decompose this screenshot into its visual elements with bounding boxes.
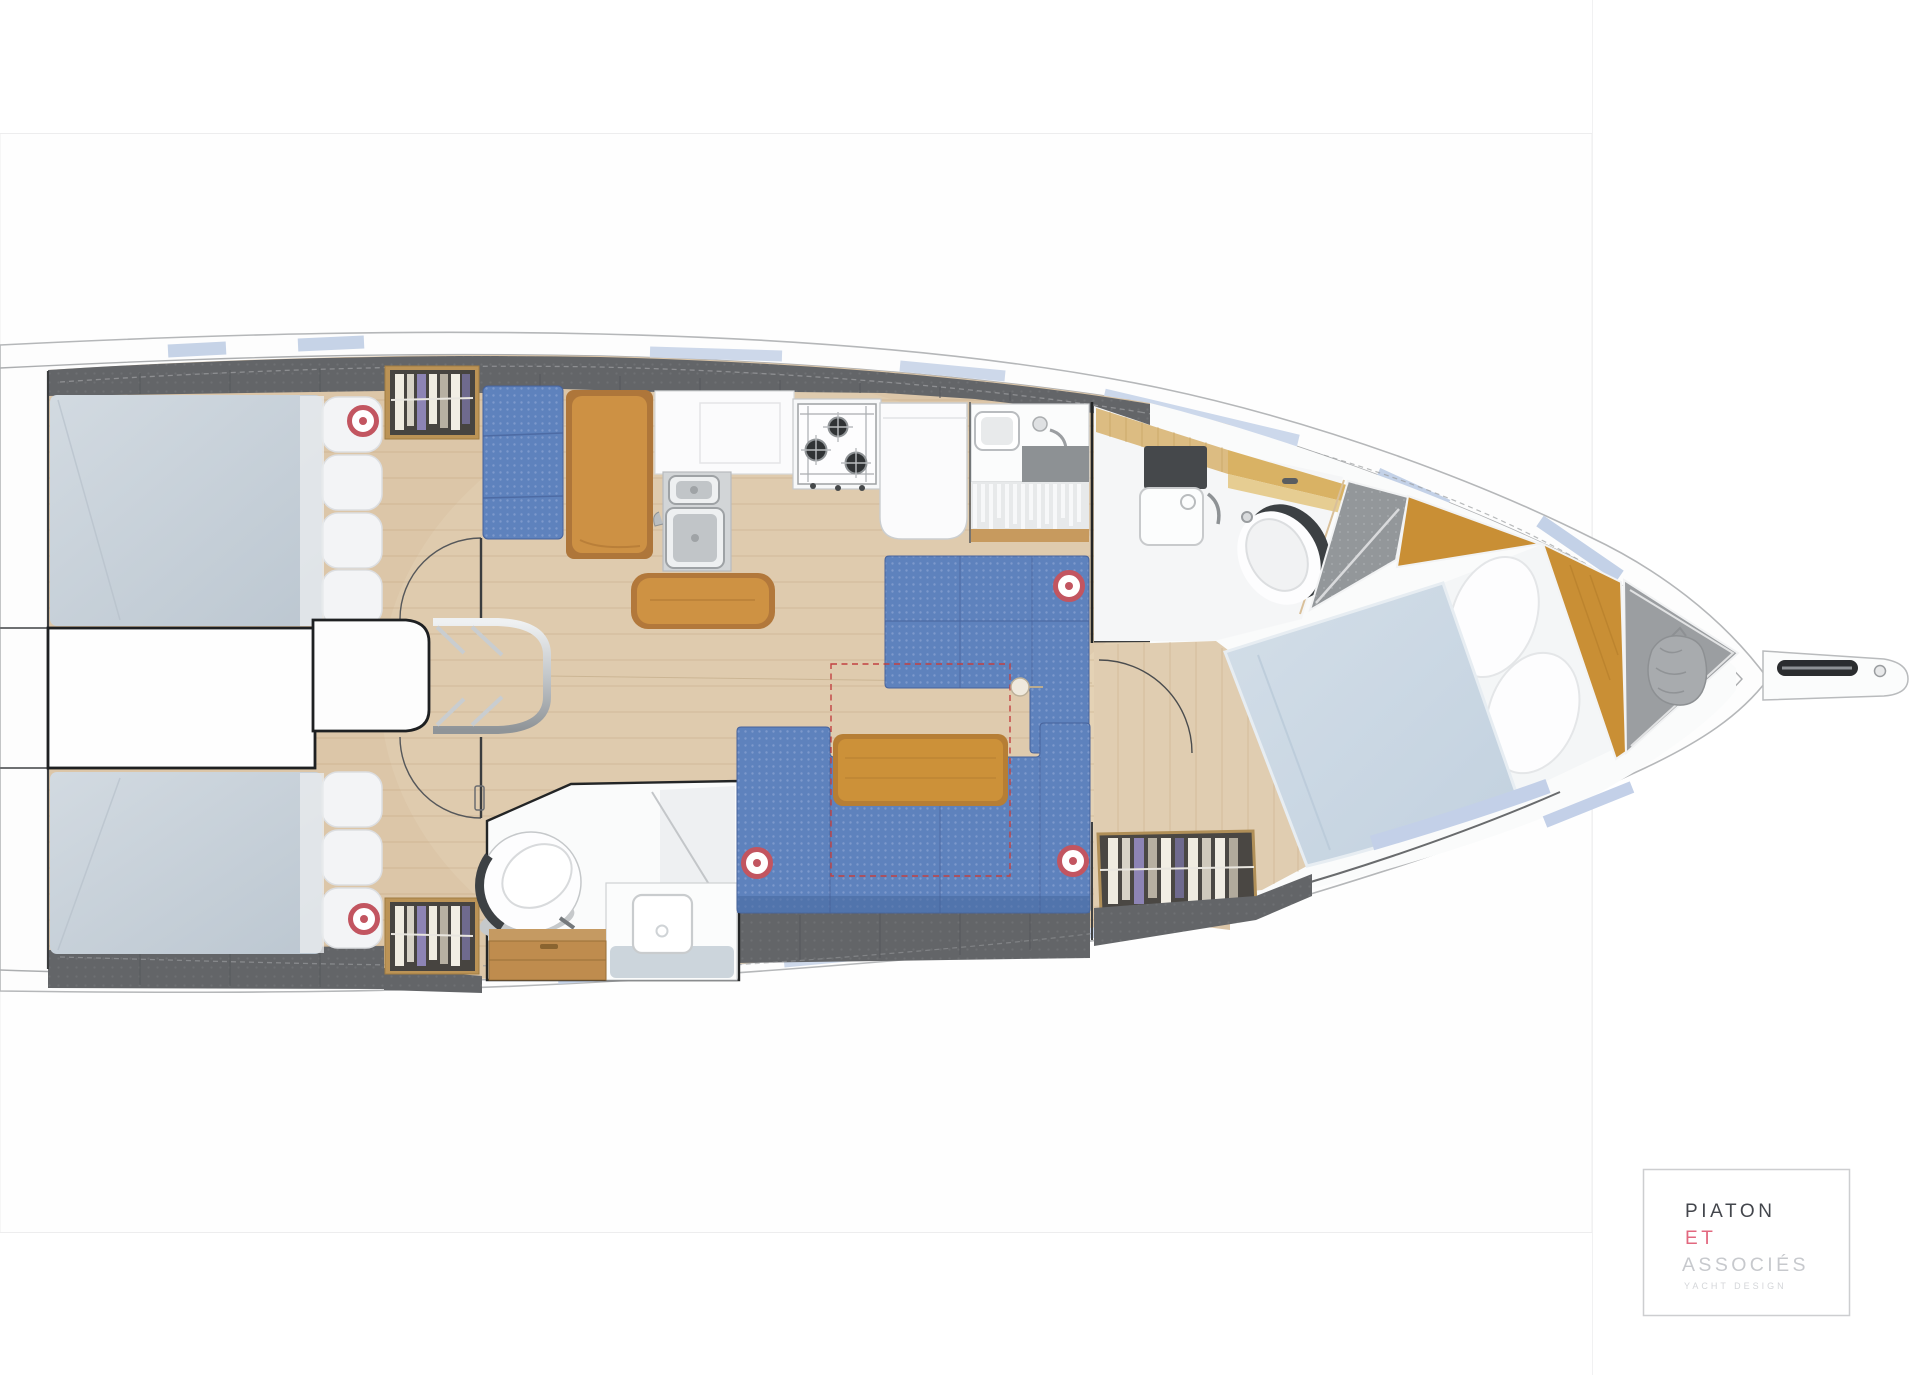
svg-text:YACHT DESIGN: YACHT DESIGN <box>1684 1281 1787 1291</box>
svg-text:PIATON: PIATON <box>1685 1201 1776 1222</box>
svg-text:ASSOCIÉS: ASSOCIÉS <box>1682 1253 1809 1276</box>
svg-text:ET: ET <box>1685 1228 1716 1249</box>
